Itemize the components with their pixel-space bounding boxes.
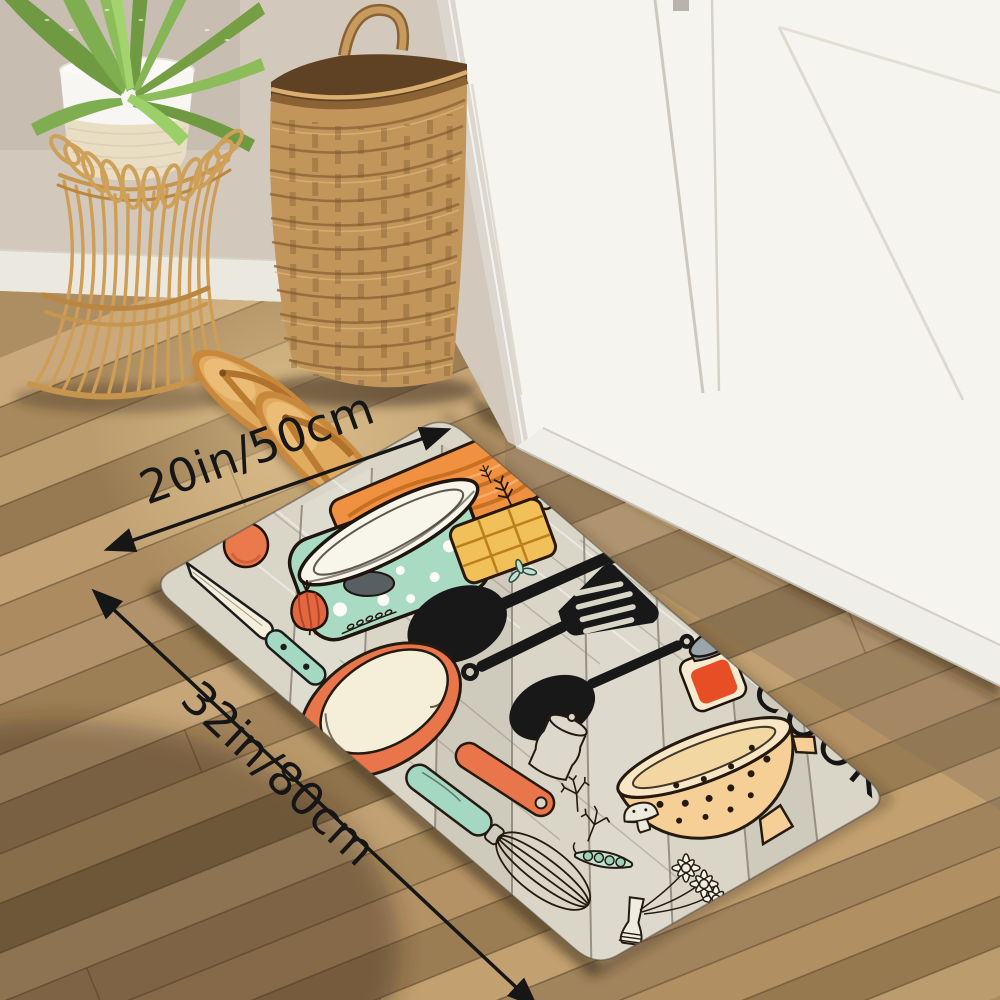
cabinet-hinge <box>673 0 689 11</box>
scene-canvas: COOK <box>0 0 1000 1000</box>
product-photo-kitchen-mat: COOK <box>0 0 1000 1000</box>
